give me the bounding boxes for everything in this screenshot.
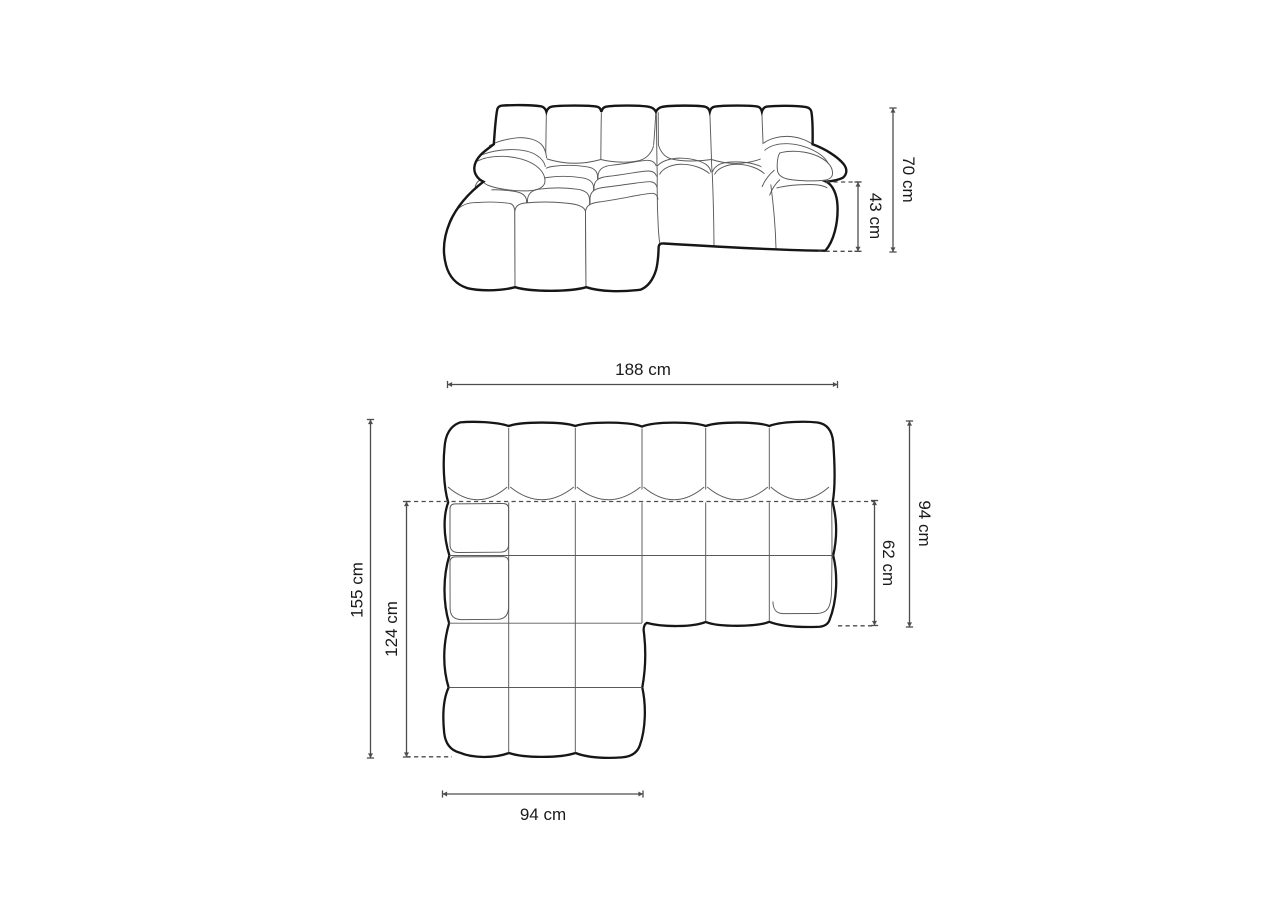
svg-text:70 cm: 70 cm bbox=[899, 156, 918, 202]
svg-text:94 cm: 94 cm bbox=[520, 805, 566, 824]
svg-text:94 cm: 94 cm bbox=[915, 500, 934, 546]
svg-text:62 cm: 62 cm bbox=[879, 540, 898, 586]
svg-text:124 cm: 124 cm bbox=[382, 601, 401, 657]
svg-text:188 cm: 188 cm bbox=[615, 360, 671, 379]
svg-text:155 cm: 155 cm bbox=[347, 562, 366, 618]
svg-text:43 cm: 43 cm bbox=[866, 193, 885, 239]
